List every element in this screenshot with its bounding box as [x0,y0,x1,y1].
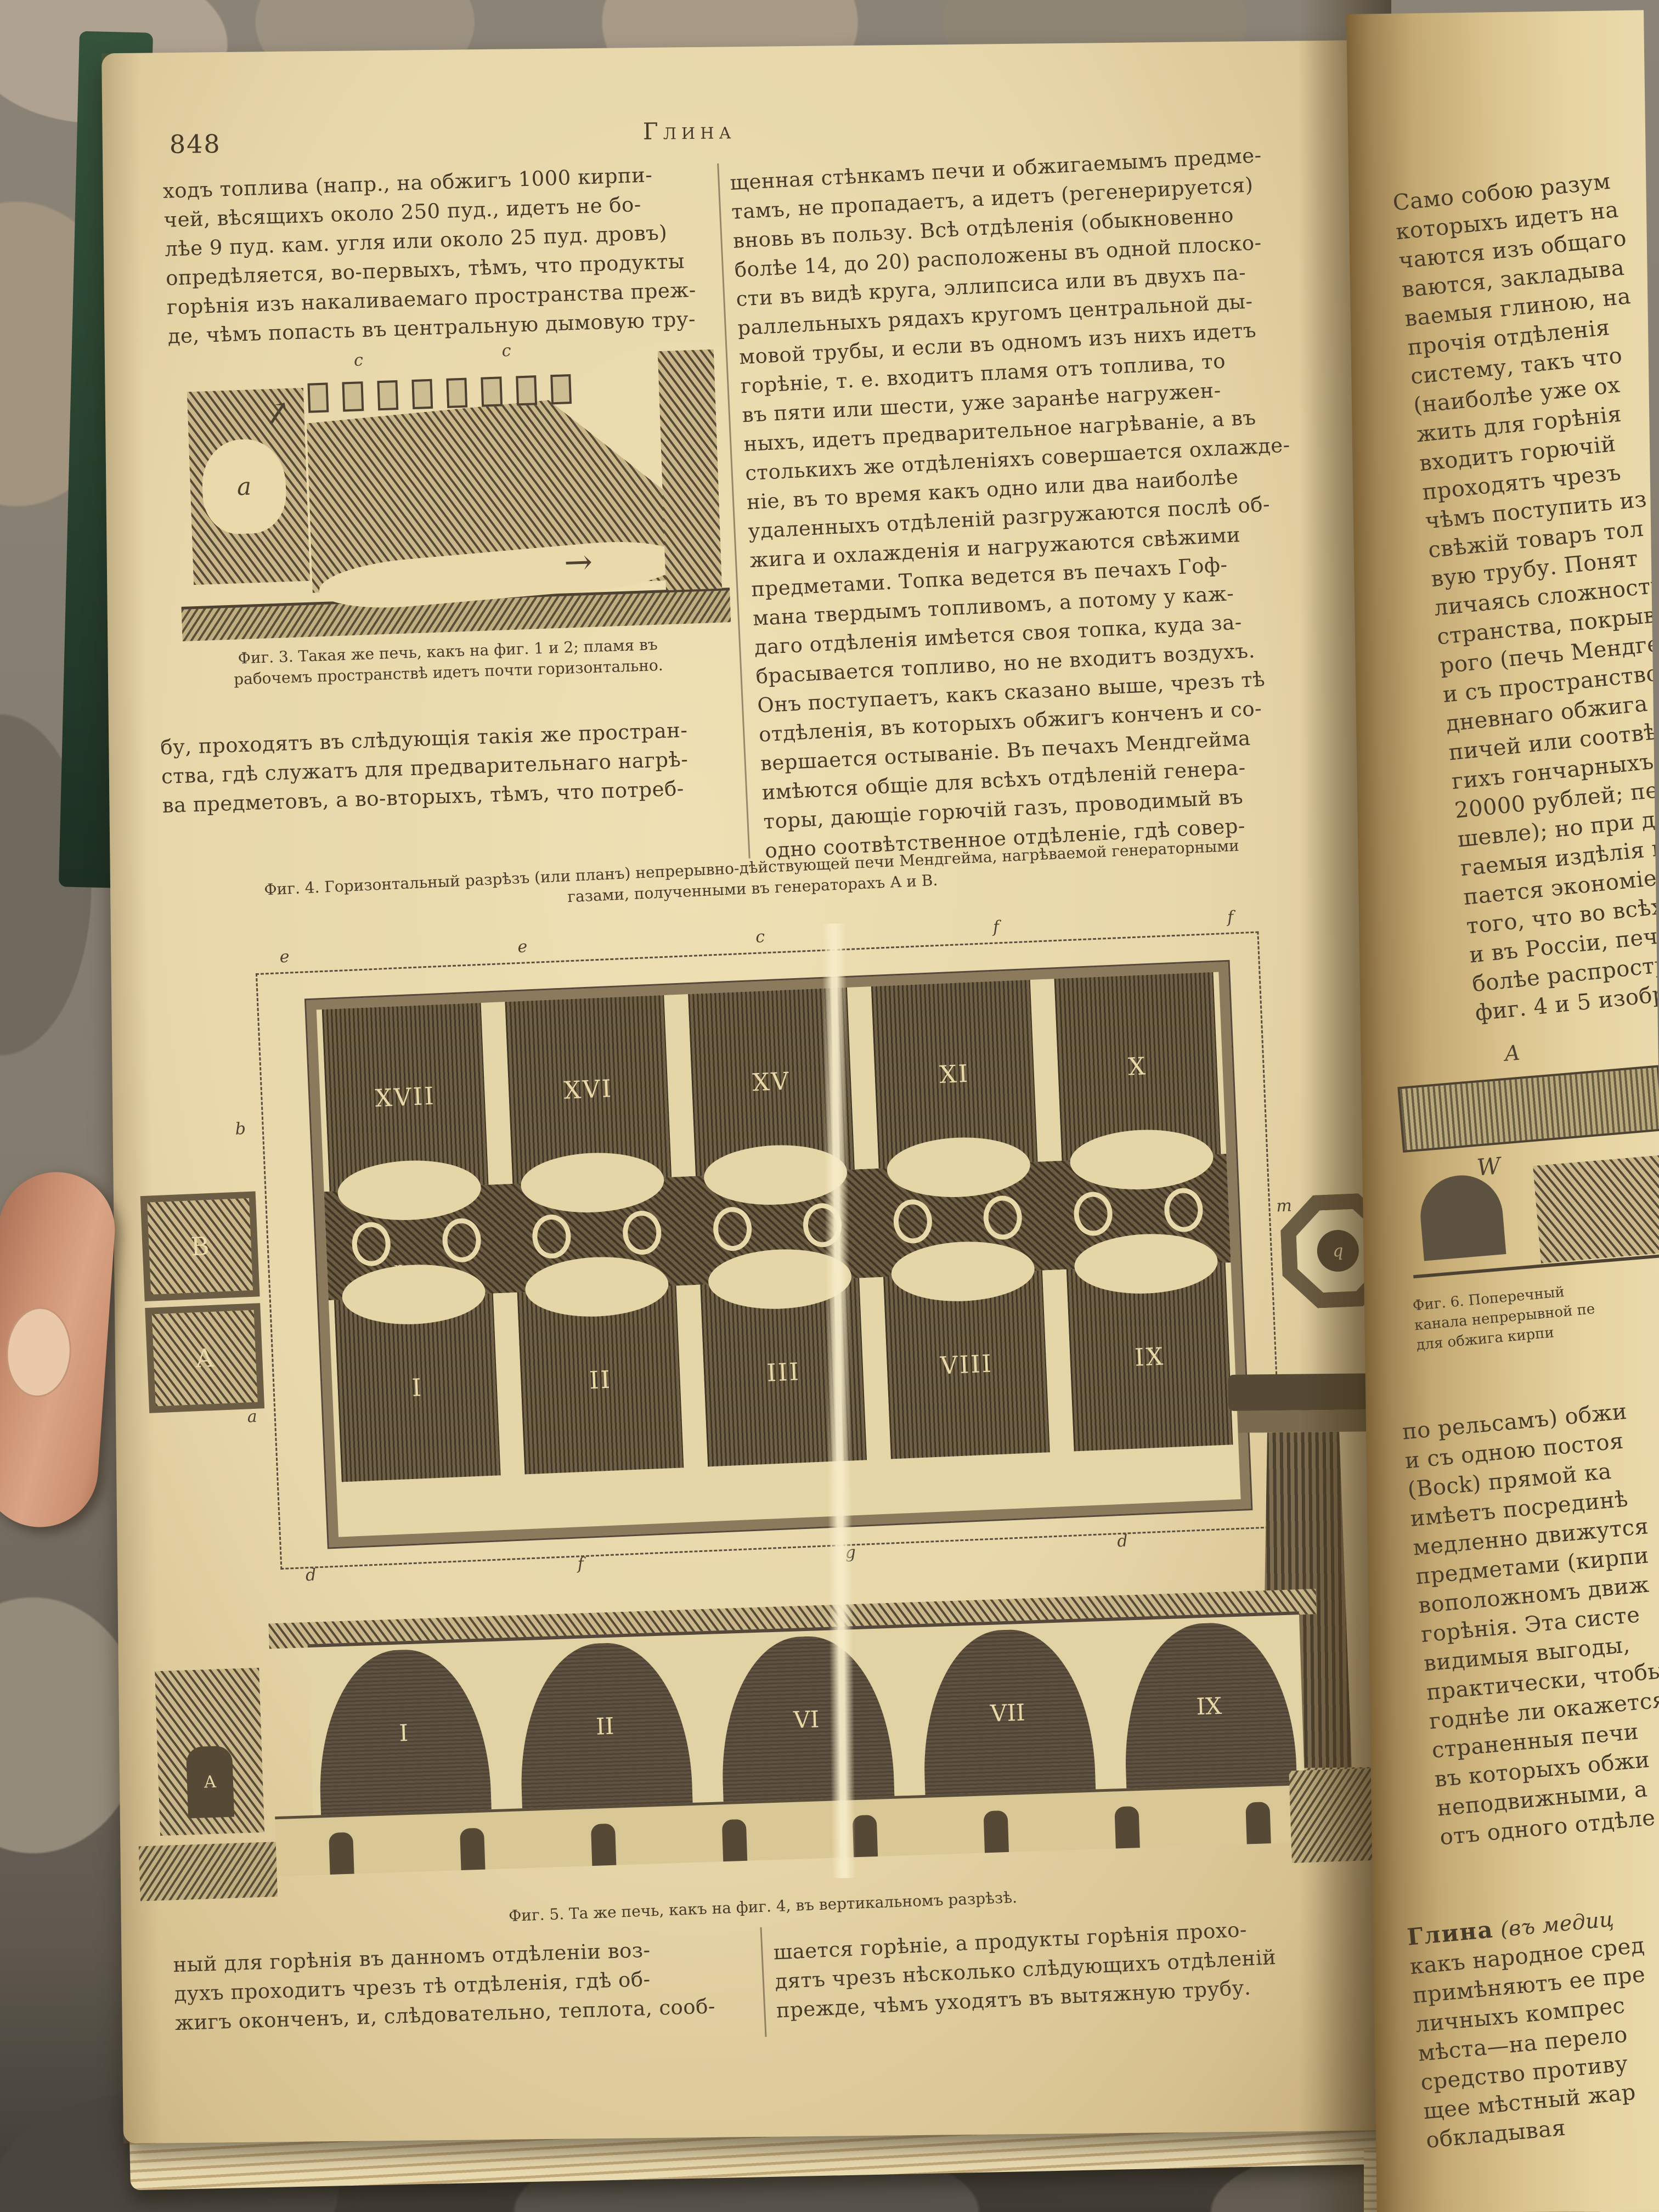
glina-entry-lines: какъ народное средпримѣняютъ ее преличны… [1409,1916,1659,2155]
fig4-top-chamber-row: XVIIXVIXVXIX [317,972,1226,1192]
gas-port-circle [712,1206,752,1252]
page-number: 848 [170,129,221,159]
gas-port-circle [1073,1191,1113,1237]
fig5-left-tower: А [155,1668,264,1836]
fig4-letter: f [1227,907,1234,927]
left-page: 848 Глина ходъ топлива (напр., на обжигъ… [101,40,1402,2143]
fig4-letter: d [305,1565,317,1585]
fig3-letter-c2: c [501,341,511,361]
fig4-letter: c [755,927,765,947]
gas-port-circle [983,1195,1023,1240]
kiln-arch-chamber: VII [919,1627,1096,1798]
kiln-arch-chamber: I [315,1647,492,1818]
right-page-lower-text: по рельсамъ) обжии съ одною постоя(Bock)… [1401,1381,1659,1852]
bottom-middle-text: шается горѣніе, а продукты горѣнія прохо… [772,1910,1347,2025]
fig4-letter: b [235,1119,252,1139]
kiln-chamber: II [517,1285,684,1474]
fig4-letter: f [992,917,1000,936]
left-column-paragraph-1: ходъ топлива (напр., на обжигъ 1000 кирп… [162,158,733,351]
fig6-letter-W: W [1476,1152,1502,1181]
fig4-letter: a [247,1407,264,1426]
kiln-chamber: IX [1066,1263,1233,1452]
gas-port-circle [622,1210,662,1256]
fig4-letter-m: m [1276,1196,1293,1216]
terrace-door [591,1824,616,1866]
fig4-kiln-plan-illustration: eecff dfgd bla m XVIIXVIXVXIX p [246,911,1314,1596]
fig6-channel-kiln-illustration: A W D [1385,1031,1659,1289]
terrace-door [329,1832,354,1875]
terrace-door [984,1810,1009,1853]
gas-port-circle [351,1221,391,1267]
running-title: Глина [596,116,782,145]
glina-entry: Глина (въ медиц какъ народное средпримѣн… [1406,1886,1659,2155]
fig5-kiln-elevation-illustration: IIIVIVIIIX А [132,1587,1386,1913]
terrace-door [721,1819,747,1861]
terrace-door [853,1815,878,1857]
kiln-arch-chamber: IX [1121,1621,1297,1792]
fig6-letter-A: A [1504,1041,1521,1066]
right-page: Само собою разумкоторыхъ идетъ начаются … [1346,10,1659,2212]
fig3-kiln-section-illustration: a c c → → [173,339,731,644]
gas-port-circle [1163,1187,1203,1233]
right-page-upper-text: Само собою разумкоторыхъ идетъ начаются … [1391,149,1659,1028]
fig5-ground-left [139,1842,278,1901]
kiln-arch-chamber: VI [718,1634,894,1805]
kiln-chamber: XI [871,980,1038,1169]
kiln-chamber: XVI [505,995,672,1184]
fig4-caption: Фиг. 4. Горизонтальный разрѣзъ (или план… [241,834,1263,922]
entry-term: Глина [1406,1916,1495,1950]
fig3-letter-c: c [353,351,363,370]
bottom-column-divider-rule [760,1927,766,2037]
photo-of-open-book: 848 Глина ходъ топлива (напр., на обжигъ… [0,0,1659,2212]
fig3-right-wall [658,349,722,590]
terrace-door [1114,1806,1139,1848]
kiln-chamber: I [334,1293,501,1482]
gas-port-circle [442,1217,482,1263]
fig6-arch [1417,1172,1506,1261]
thumbnail [3,1305,74,1400]
gas-port-circle [893,1199,933,1244]
fig3-flow-arrow-right: → [563,541,593,583]
fig4-bottom-chamber-row: IIIIIIVIIIIX [329,1262,1238,1482]
kiln-chamber: VIII [883,1271,1050,1459]
fig6-hatch-block [1533,1154,1659,1263]
terrace-door [1245,1802,1271,1844]
terrace-door [460,1828,485,1870]
kiln-arch-chamber: II [517,1640,693,1812]
middle-column-text: щенная стѣнкамъ печи и обжигаемымъ предм… [729,139,1319,865]
bottom-left-text: ный для горѣнія въ данномъ отдѣленіи воз… [173,1932,757,2038]
fig4-kiln-structure: XVIIXVIXVXIX p IIIIIIVIIIIX [306,962,1251,1548]
kiln-chamber: XVII [322,1003,489,1192]
fig4-generator-A: А [145,1303,264,1413]
fig4-letter: f [577,1554,584,1573]
left-column-paragraph-2: бу, проходятъ въ слѣдующія такія же прос… [160,714,738,820]
fig4-letter: e [517,937,528,957]
fig5-tower-door: А [186,1746,234,1819]
kiln-chamber: X [1054,972,1221,1161]
fig6-top-beam [1397,1065,1659,1153]
gas-port-circle [532,1214,572,1259]
fig4-letter: e [279,947,290,967]
fig4-generator-B: В [140,1191,260,1301]
fig4-letter: d [1117,1531,1128,1551]
